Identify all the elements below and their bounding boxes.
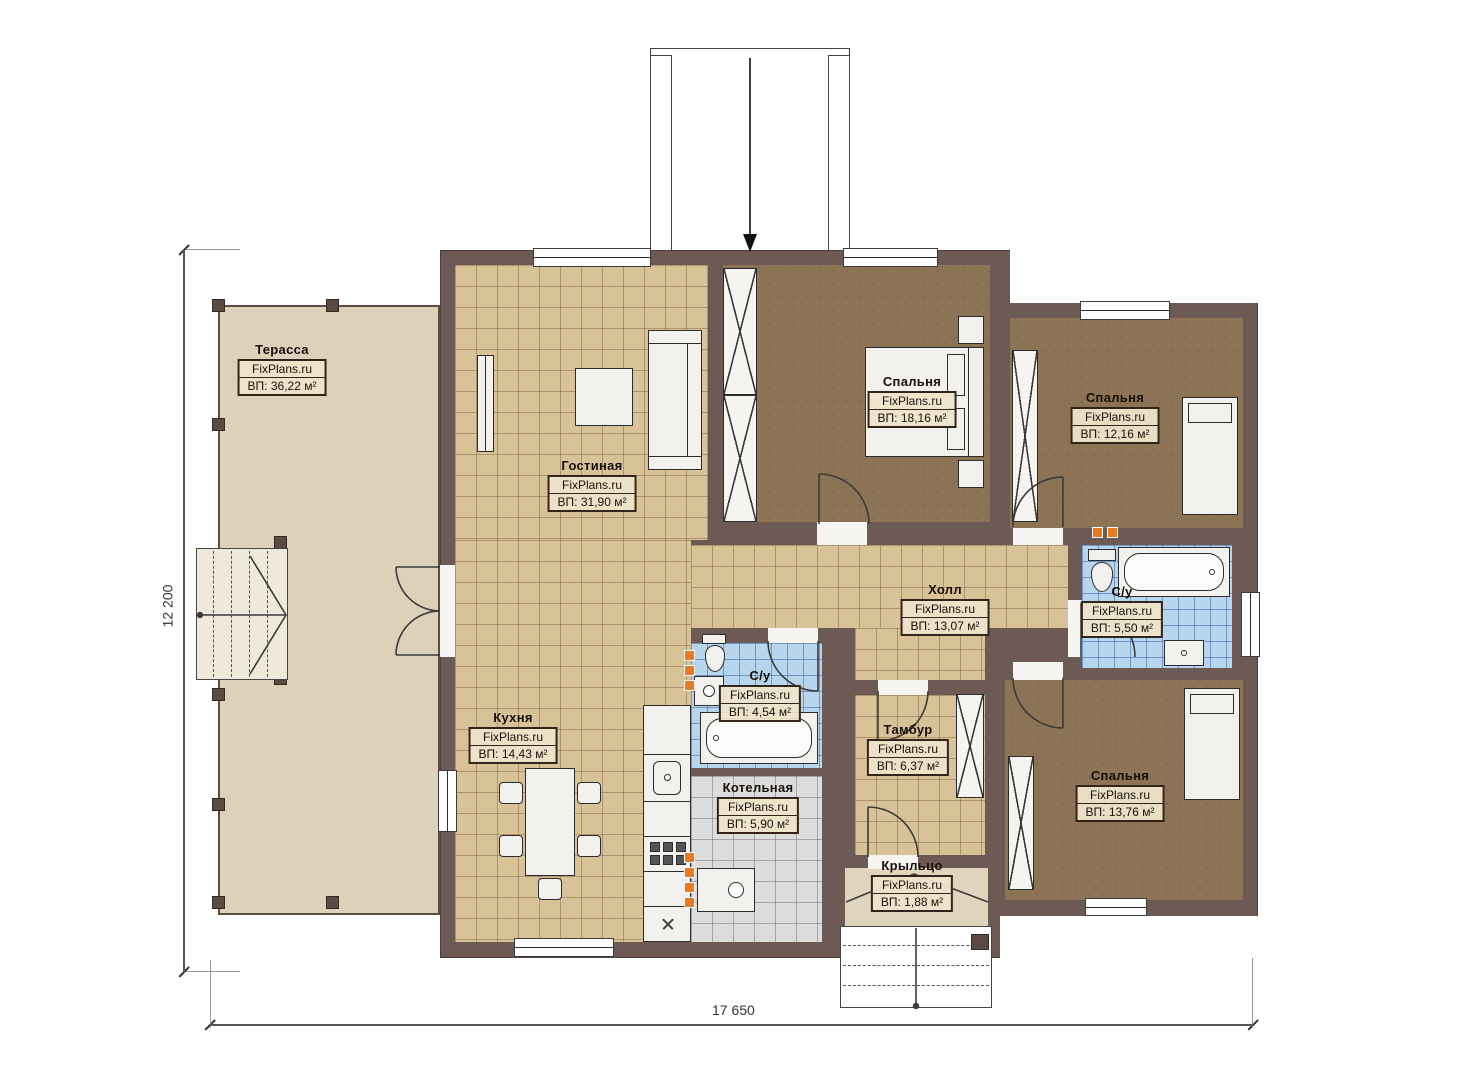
terrace-post bbox=[212, 798, 225, 811]
chair bbox=[577, 835, 601, 857]
terrace-post bbox=[212, 418, 225, 431]
dimension-line-vertical bbox=[183, 250, 185, 972]
room-name: Гостиная bbox=[548, 458, 637, 473]
window-glass-line bbox=[447, 771, 448, 831]
room-label-porch: Крыльцо FixPlans.ru ВП: 1,88 м² bbox=[871, 858, 953, 912]
nightstand bbox=[958, 316, 984, 344]
wardrobe-closet bbox=[956, 694, 984, 798]
room-info-box: FixPlans.ru ВП: 31,90 м² bbox=[548, 475, 637, 512]
room-name: Спальня bbox=[1076, 768, 1165, 783]
terrace-post bbox=[326, 299, 339, 312]
pillow bbox=[1188, 403, 1232, 423]
room-info-box: FixPlans.ru ВП: 36,22 м² bbox=[238, 359, 327, 396]
pillow bbox=[1190, 694, 1234, 714]
room-name: Крыльцо bbox=[871, 858, 953, 873]
door-opening bbox=[878, 680, 928, 695]
room-info-box: FixPlans.ru ВП: 4,54 м² bbox=[719, 685, 801, 722]
stove-burner bbox=[676, 842, 686, 852]
room-name: Холл bbox=[901, 582, 990, 597]
wardrobe-closet bbox=[723, 395, 757, 522]
room-area: ВП: 1,88 м² bbox=[873, 894, 951, 910]
room-area: ВП: 36,22 м² bbox=[240, 378, 325, 394]
window bbox=[1080, 301, 1170, 320]
bed-headboard-line bbox=[968, 348, 969, 456]
counter-divider bbox=[644, 801, 690, 802]
dimension-height-label: 12 200 bbox=[159, 585, 175, 628]
room-label-bathroom-1: С/у FixPlans.ru ВП: 5,50 м² bbox=[1081, 584, 1163, 638]
room-label-living: Гостиная FixPlans.ru ВП: 31,90 м² bbox=[548, 458, 637, 512]
room-name: Спальня bbox=[1071, 390, 1160, 405]
window-glass-line bbox=[844, 257, 937, 258]
brand-label: FixPlans.ru bbox=[240, 361, 325, 378]
window-glass-line bbox=[515, 947, 613, 948]
chair bbox=[577, 782, 601, 804]
sofa-armrest-line bbox=[649, 456, 701, 457]
room-name: Котельная bbox=[717, 780, 799, 795]
boiler-dial bbox=[728, 882, 744, 898]
stair-step bbox=[249, 551, 250, 677]
counter-x-mark bbox=[660, 916, 676, 932]
chair bbox=[499, 782, 523, 804]
extension-line bbox=[186, 249, 240, 250]
dining-table bbox=[525, 768, 575, 876]
bathtub-drain bbox=[1209, 569, 1215, 575]
radiator-block bbox=[684, 882, 695, 893]
stove-burner bbox=[650, 855, 660, 865]
room-area: ВП: 6,37 м² bbox=[869, 758, 947, 774]
brand-label: FixPlans.ru bbox=[550, 477, 635, 494]
brand-label: FixPlans.ru bbox=[870, 393, 955, 410]
radiator-block bbox=[1092, 527, 1103, 538]
stove-burner bbox=[663, 842, 673, 852]
washer-door bbox=[703, 685, 715, 697]
room-info-box: FixPlans.ru ВП: 5,90 м² bbox=[717, 797, 799, 834]
door-opening bbox=[817, 522, 867, 545]
terrace-stairs bbox=[196, 548, 288, 680]
window bbox=[1241, 592, 1260, 657]
stair-step bbox=[267, 551, 268, 677]
window-glass-line bbox=[1086, 907, 1146, 908]
bathtub-basin bbox=[706, 718, 812, 758]
room-label-bedroom-2: Спальня FixPlans.ru ВП: 12,16 м² bbox=[1071, 390, 1160, 444]
coffee-table bbox=[575, 368, 633, 426]
porch-post bbox=[971, 934, 989, 950]
sofa bbox=[648, 330, 702, 470]
room-info-box: FixPlans.ru ВП: 13,07 м² bbox=[901, 599, 990, 636]
ramp-column-right bbox=[828, 55, 850, 255]
radiator-block bbox=[684, 665, 695, 676]
room-info-box: FixPlans.ru ВП: 14,43 м² bbox=[469, 727, 558, 764]
room-info-box: FixPlans.ru ВП: 18,16 м² bbox=[868, 391, 957, 428]
wardrobe-closet bbox=[1012, 350, 1038, 522]
bed bbox=[1184, 688, 1240, 800]
door-opening bbox=[1013, 528, 1063, 545]
brand-label: FixPlans.ru bbox=[719, 799, 797, 816]
terrace-post bbox=[212, 299, 225, 312]
window bbox=[533, 248, 651, 267]
terrace-post bbox=[212, 896, 225, 909]
tv-stand-line bbox=[485, 356, 486, 451]
radiator-block bbox=[684, 650, 695, 661]
room-label-bedroom-1: Спальня FixPlans.ru ВП: 18,16 м² bbox=[868, 374, 957, 428]
bathtub-drain bbox=[713, 735, 719, 741]
ramp-column-left bbox=[650, 55, 672, 255]
window-glass-line bbox=[1081, 310, 1169, 311]
radiator-block bbox=[684, 867, 695, 878]
extension-line bbox=[210, 960, 211, 1028]
window bbox=[438, 770, 457, 832]
toilet bbox=[702, 634, 726, 644]
floor-plan-canvas: 12 200 17 650 bbox=[0, 0, 1473, 1080]
tv-stand bbox=[477, 355, 494, 452]
brand-label: FixPlans.ru bbox=[1083, 603, 1161, 620]
room-label-hall: Холл FixPlans.ru ВП: 13,07 м² bbox=[901, 582, 990, 636]
sink bbox=[1164, 640, 1204, 666]
chair bbox=[538, 878, 562, 900]
bed bbox=[1182, 397, 1238, 515]
radiator-block bbox=[1107, 527, 1118, 538]
room-area: ВП: 13,07 м² bbox=[903, 618, 988, 634]
brand-label: FixPlans.ru bbox=[873, 877, 951, 894]
stair-step bbox=[231, 551, 232, 677]
entrance-stairs bbox=[840, 926, 992, 1008]
toilet bbox=[1088, 549, 1116, 561]
sofa-armrest-line bbox=[649, 343, 701, 344]
room-area: ВП: 4,54 м² bbox=[721, 704, 799, 720]
room-hall-floor bbox=[691, 545, 1068, 628]
room-area: ВП: 14,43 м² bbox=[471, 746, 556, 762]
stove-burner bbox=[663, 855, 673, 865]
room-label-bedroom-3: Спальня FixPlans.ru ВП: 13,76 м² bbox=[1076, 768, 1165, 822]
room-label-bathroom-2: С/у FixPlans.ru ВП: 4,54 м² bbox=[719, 668, 801, 722]
stove-burner bbox=[650, 842, 660, 852]
wardrobe-closet bbox=[723, 268, 757, 395]
dimension-line-horizontal bbox=[210, 1024, 1253, 1026]
brand-label: FixPlans.ru bbox=[869, 741, 947, 758]
radiator-block bbox=[684, 852, 695, 863]
brand-label: FixPlans.ru bbox=[471, 729, 556, 746]
footprint-notch bbox=[1000, 916, 1258, 958]
room-name: Кухня bbox=[469, 710, 558, 725]
sofa-back-line bbox=[687, 343, 688, 457]
room-name: Спальня bbox=[868, 374, 957, 389]
room-label-kitchen: Кухня FixPlans.ru ВП: 14,43 м² bbox=[469, 710, 558, 764]
chair bbox=[499, 835, 523, 857]
extension-line bbox=[186, 971, 240, 972]
window bbox=[514, 938, 614, 957]
footprint-notch bbox=[1010, 250, 1258, 303]
brand-label: FixPlans.ru bbox=[1073, 409, 1158, 426]
room-area: ВП: 18,16 м² bbox=[870, 410, 955, 426]
room-area: ВП: 13,76 м² bbox=[1078, 804, 1163, 820]
terrace-post bbox=[212, 688, 225, 701]
room-name: С/у bbox=[1081, 584, 1163, 599]
driveway-ramp bbox=[650, 48, 850, 252]
room-info-box: FixPlans.ru ВП: 1,88 м² bbox=[871, 875, 953, 912]
brand-label: FixPlans.ru bbox=[903, 601, 988, 618]
room-label-boiler: Котельная FixPlans.ru ВП: 5,90 м² bbox=[717, 780, 799, 834]
room-area: ВП: 5,50 м² bbox=[1083, 620, 1161, 636]
terrace-post bbox=[326, 896, 339, 909]
radiator-block bbox=[684, 680, 695, 691]
radiator-block bbox=[684, 897, 695, 908]
sink-drain bbox=[1181, 650, 1187, 656]
door-opening bbox=[768, 628, 818, 643]
room-info-box: FixPlans.ru ВП: 13,76 м² bbox=[1076, 785, 1165, 822]
window bbox=[1085, 898, 1147, 916]
room-name: Терасса bbox=[238, 342, 327, 357]
room-label-vestibule: Тамбур FixPlans.ru ВП: 6,37 м² bbox=[867, 722, 949, 776]
dimension-width-label: 17 650 bbox=[712, 1002, 755, 1018]
counter-divider bbox=[644, 754, 690, 755]
wardrobe-closet bbox=[1008, 756, 1034, 890]
room-label-terrace: Терасса FixPlans.ru ВП: 36,22 м² bbox=[238, 342, 327, 396]
window bbox=[843, 248, 938, 267]
room-name: Тамбур bbox=[867, 722, 949, 737]
room-info-box: FixPlans.ru ВП: 5,50 м² bbox=[1081, 601, 1163, 638]
kitchen-sink-drain bbox=[664, 774, 671, 781]
brand-label: FixPlans.ru bbox=[721, 687, 799, 704]
boiler-unit bbox=[697, 868, 755, 912]
room-area: ВП: 12,16 м² bbox=[1073, 426, 1158, 442]
stair-step bbox=[843, 945, 989, 946]
brand-label: FixPlans.ru bbox=[1078, 787, 1163, 804]
door-opening bbox=[1013, 662, 1063, 680]
room-name: С/у bbox=[719, 668, 801, 683]
counter-divider bbox=[644, 836, 690, 837]
room-info-box: FixPlans.ru ВП: 6,37 м² bbox=[867, 739, 949, 776]
stair-step bbox=[843, 965, 989, 966]
window-glass-line bbox=[1250, 593, 1251, 656]
window-glass-line bbox=[534, 257, 650, 258]
room-info-box: FixPlans.ru ВП: 12,16 м² bbox=[1071, 407, 1160, 444]
stair-step bbox=[843, 985, 989, 986]
nightstand bbox=[958, 460, 984, 488]
room-area: ВП: 5,90 м² bbox=[719, 816, 797, 832]
room-area: ВП: 31,90 м² bbox=[550, 494, 635, 510]
terrace-door-opening bbox=[440, 565, 455, 657]
stair-step bbox=[213, 551, 214, 677]
